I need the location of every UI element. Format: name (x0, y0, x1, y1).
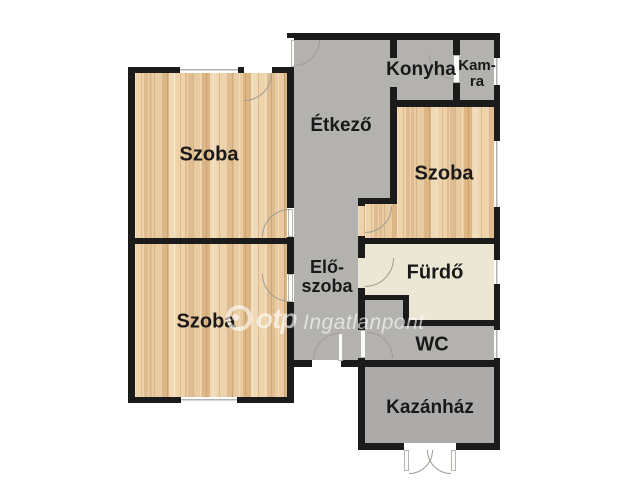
watermark-name: Ingatlanpont (303, 311, 425, 335)
watermark-logo-dot-icon (232, 314, 239, 321)
floor-plan: Szoba Szoba Szoba Étkező Konyha Kam- ra … (0, 0, 640, 482)
entrance-door-arc (294, 40, 320, 66)
kazanhaz-door-arc-right (427, 450, 451, 474)
wall (128, 397, 181, 403)
window (494, 330, 500, 358)
room-label-etkezo: Étkező (310, 115, 371, 137)
room-label-konyha: Konyha (386, 59, 456, 81)
window (494, 260, 500, 284)
room-label-kamra-line2: ra (458, 74, 496, 90)
floor-furdo-doorway (358, 258, 365, 288)
room-label-furdo: Fürdő (407, 262, 464, 285)
szoba-top-door-arc (262, 209, 290, 237)
wc-door-arc (367, 332, 393, 358)
wall (358, 198, 397, 204)
room-label-szoba-right: Szoba (415, 163, 474, 186)
kazanhaz-door-leaf-right (451, 450, 456, 471)
room-label-eloszoba-line2: szoba (301, 277, 352, 296)
wall (287, 67, 294, 208)
room-label-wc: WC (415, 334, 448, 357)
wall (287, 33, 500, 40)
wall (128, 67, 135, 403)
eloszoba-exit-door-arc (313, 333, 340, 360)
szoba-right-door-arc (365, 206, 392, 233)
wall (494, 358, 500, 450)
wall (358, 238, 500, 244)
room-label-kamra-line1: Kam- (458, 58, 496, 74)
szoba-top-exterior-door-arc (244, 73, 272, 101)
wall (358, 295, 409, 300)
wall (358, 358, 365, 450)
floor-nook-doorway (358, 206, 365, 236)
room-label-eloszoba-line1: Elő- (301, 258, 352, 277)
wall (390, 100, 500, 107)
room-label-szoba-top-left: Szoba (180, 144, 239, 167)
wall (341, 360, 500, 367)
watermark-logo-icon (226, 305, 252, 331)
wall (358, 443, 404, 450)
wall (287, 360, 312, 367)
wall (494, 207, 500, 260)
wall (128, 238, 294, 244)
wall (272, 67, 294, 73)
room-label-kazanhaz: Kazánház (386, 397, 474, 419)
kazanhaz-door-gap (404, 443, 456, 450)
room-label-eloszoba: Elő- szoba (301, 258, 352, 296)
wall (494, 85, 500, 141)
window (180, 67, 238, 73)
room-label-kamra: Kam- ra (458, 58, 496, 90)
wall (237, 397, 294, 403)
window (494, 141, 500, 207)
window (181, 397, 237, 403)
watermark-brand: otp (256, 303, 297, 335)
wall (128, 67, 180, 73)
wall (456, 443, 500, 450)
szoba-bottom-door-arc (262, 274, 290, 302)
furdo-door-arc (365, 258, 394, 287)
